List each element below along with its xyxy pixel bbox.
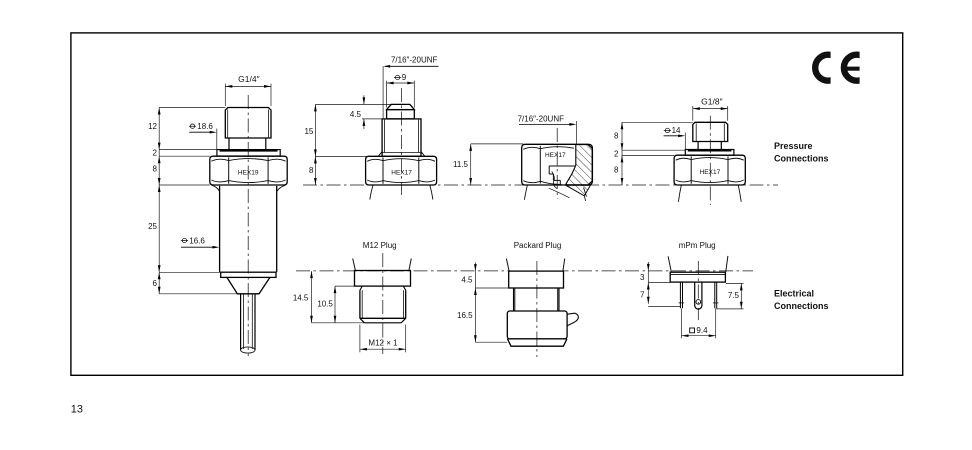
svg-text:Pressure: Pressure bbox=[774, 141, 813, 151]
svg-text:25: 25 bbox=[148, 222, 157, 231]
svg-text:14: 14 bbox=[672, 126, 681, 135]
svg-text:9: 9 bbox=[402, 73, 407, 82]
svg-text:10.5: 10.5 bbox=[317, 300, 333, 309]
svg-text:HEX17: HEX17 bbox=[545, 152, 566, 159]
svg-text:M12 × 1: M12 × 1 bbox=[368, 338, 398, 347]
svg-text:8: 8 bbox=[309, 166, 314, 175]
svg-text:7/16″-20UNF: 7/16″-20UNF bbox=[518, 114, 565, 123]
svg-text:HEX17: HEX17 bbox=[391, 170, 412, 177]
svg-text:Connections: Connections bbox=[774, 153, 829, 163]
svg-text:4.5: 4.5 bbox=[461, 275, 473, 284]
svg-text:11.5: 11.5 bbox=[453, 160, 469, 169]
svg-text:18.6: 18.6 bbox=[197, 122, 213, 131]
svg-text:7: 7 bbox=[640, 290, 645, 299]
svg-text:9.4: 9.4 bbox=[696, 326, 708, 335]
svg-text:Packard Plug: Packard Plug bbox=[514, 241, 562, 250]
svg-text:16.6: 16.6 bbox=[189, 236, 205, 245]
svg-text:2: 2 bbox=[153, 148, 158, 157]
svg-text:7.5: 7.5 bbox=[728, 291, 740, 300]
svg-text:M12 Plug: M12 Plug bbox=[363, 241, 397, 250]
svg-text:12: 12 bbox=[148, 122, 157, 131]
svg-text:13: 13 bbox=[71, 404, 83, 416]
svg-text:HEX19: HEX19 bbox=[238, 170, 259, 177]
svg-text:8: 8 bbox=[614, 132, 619, 141]
svg-text:16.5: 16.5 bbox=[457, 311, 473, 320]
svg-text:3: 3 bbox=[640, 273, 645, 282]
svg-text:Connections: Connections bbox=[774, 301, 829, 311]
svg-text:Electrical: Electrical bbox=[774, 288, 814, 298]
svg-text:mPm Plug: mPm Plug bbox=[679, 241, 716, 250]
svg-text:7/16″-20UNF: 7/16″-20UNF bbox=[391, 55, 438, 64]
svg-text:2: 2 bbox=[614, 150, 619, 159]
svg-text:8: 8 bbox=[153, 165, 158, 174]
svg-text:G1/8″: G1/8″ bbox=[701, 96, 722, 106]
svg-text:15: 15 bbox=[304, 127, 313, 136]
svg-text:8: 8 bbox=[614, 166, 619, 175]
svg-text:HEX17: HEX17 bbox=[700, 169, 721, 176]
svg-text:14.5: 14.5 bbox=[293, 293, 309, 302]
svg-text:G1/4″: G1/4″ bbox=[238, 74, 259, 84]
svg-text:4.5: 4.5 bbox=[350, 110, 362, 119]
svg-text:6: 6 bbox=[153, 279, 158, 288]
